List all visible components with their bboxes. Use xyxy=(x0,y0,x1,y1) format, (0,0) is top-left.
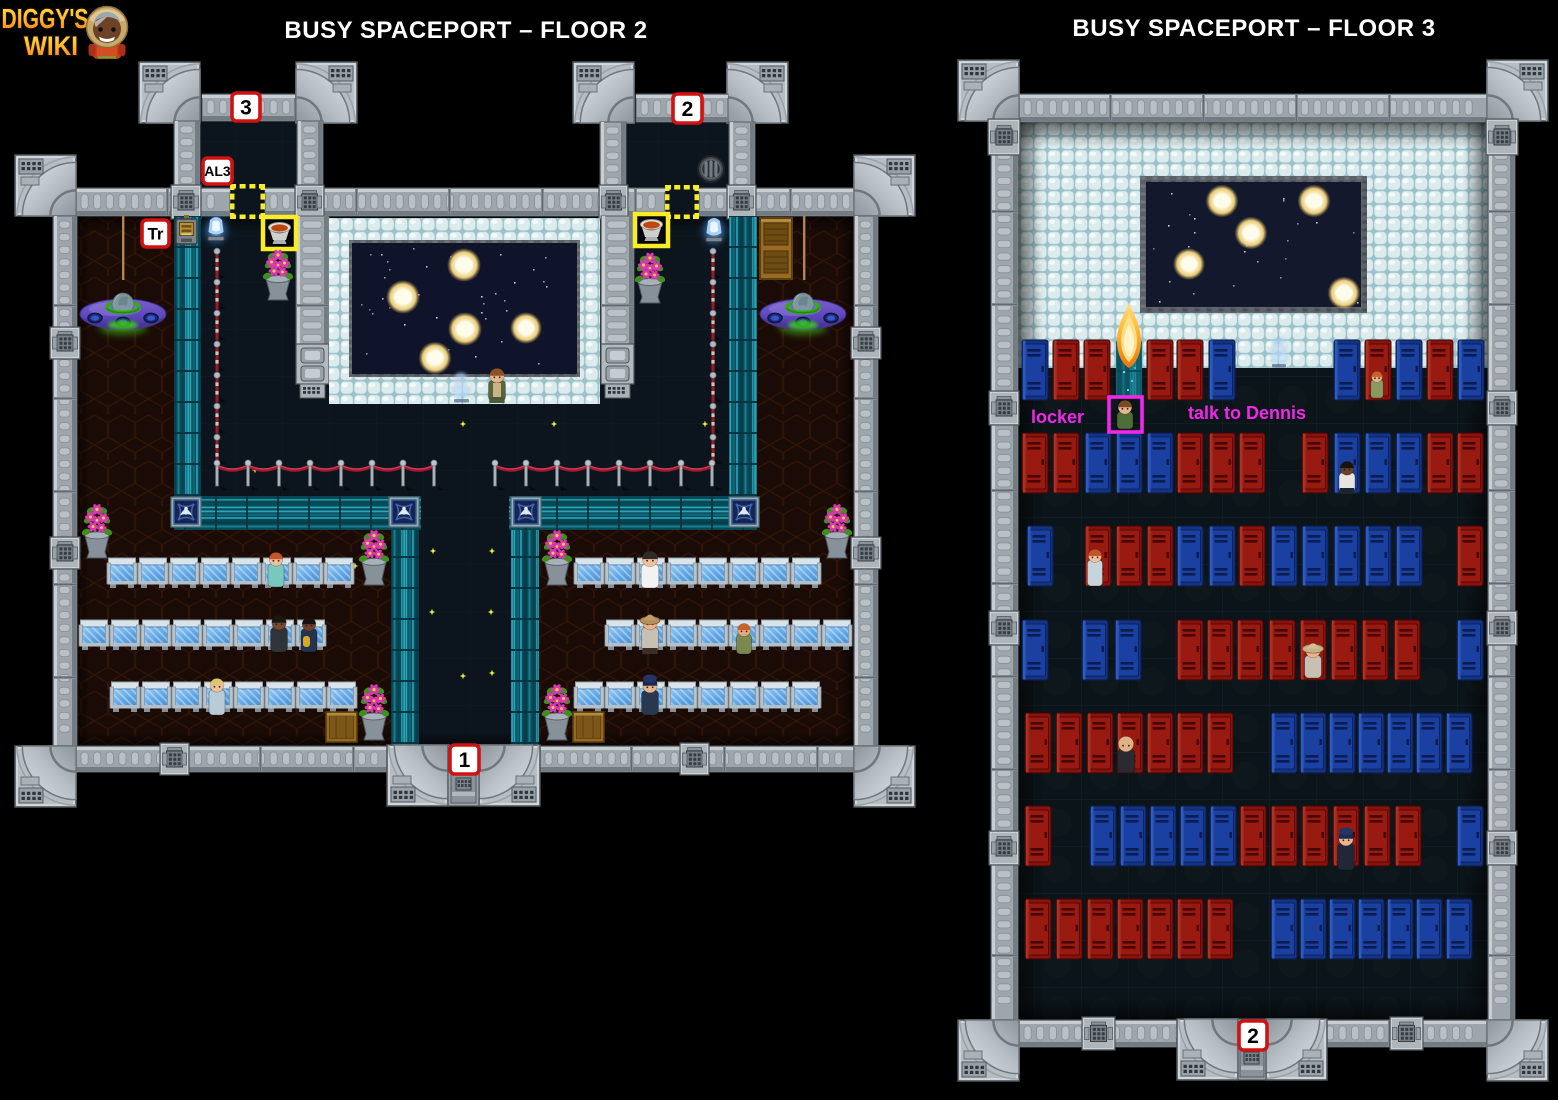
svg-text:3: 3 xyxy=(240,97,252,120)
svg-text:2: 2 xyxy=(682,98,694,121)
svg-text:AL3: AL3 xyxy=(204,163,231,179)
svg-text:BUSY SPACEPORT – FLOOR 2: BUSY SPACEPORT – FLOOR 2 xyxy=(284,17,647,44)
svg-text:locker: locker xyxy=(1031,407,1084,427)
svg-text:DIGGY'S: DIGGY'S xyxy=(2,3,89,34)
svg-text:1: 1 xyxy=(459,749,471,772)
svg-text:2: 2 xyxy=(1247,1025,1259,1048)
svg-text:BUSY SPACEPORT – FLOOR 3: BUSY SPACEPORT – FLOOR 3 xyxy=(1072,15,1435,42)
svg-text:WIKI: WIKI xyxy=(24,31,78,61)
svg-text:talk to Dennis: talk to Dennis xyxy=(1188,403,1306,423)
svg-text:Tr: Tr xyxy=(147,225,163,244)
